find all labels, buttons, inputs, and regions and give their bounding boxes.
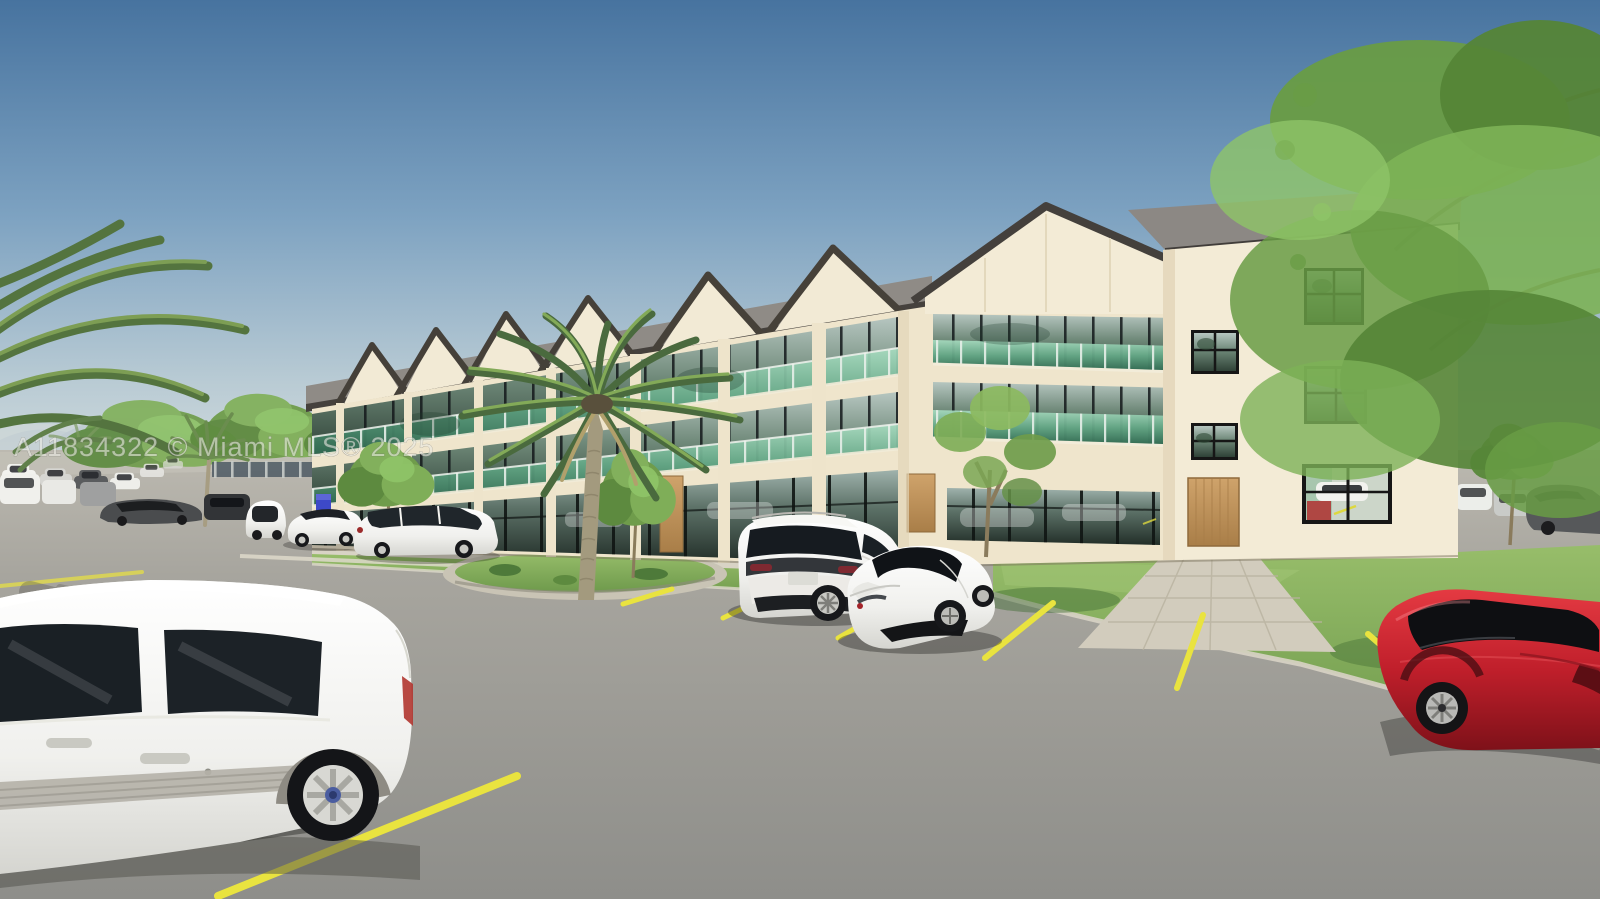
corner-pier xyxy=(898,311,909,566)
corner-entry-door xyxy=(907,474,935,532)
white-cargo-van xyxy=(0,580,420,888)
red-sedan xyxy=(1377,589,1600,764)
white-compact-suv xyxy=(354,506,500,564)
mls-watermark: A11834322 © Miami MLS® 2025 xyxy=(14,432,435,462)
dark-suv xyxy=(204,494,250,520)
rendering-photo: A11834322 © Miami MLS® 2025 xyxy=(0,0,1600,899)
white-hatchback xyxy=(246,500,286,540)
rendering-canvas: A11834322 © Miami MLS® 2025 xyxy=(0,0,1600,899)
